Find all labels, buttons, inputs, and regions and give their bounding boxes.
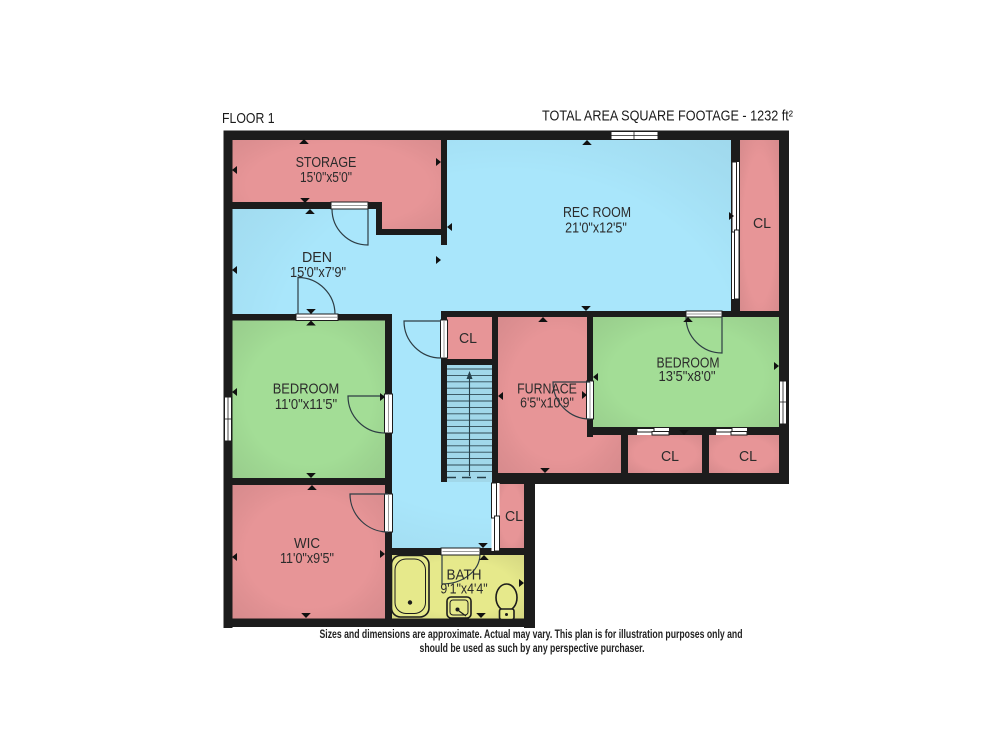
svg-text:CL: CL <box>505 508 523 525</box>
svg-text:9'1"x4'4": 9'1"x4'4" <box>440 581 487 598</box>
svg-text:REC ROOM: REC ROOM <box>563 204 631 221</box>
svg-text:CL: CL <box>459 330 477 347</box>
svg-text:6'5"x10'9": 6'5"x10'9" <box>520 395 574 412</box>
svg-text:CL: CL <box>661 448 679 465</box>
svg-text:13'5"x8'0": 13'5"x8'0" <box>659 368 716 385</box>
svg-text:TOTAL AREA SQUARE FOOTAGE - 12: TOTAL AREA SQUARE FOOTAGE - 1232 ft² <box>542 109 793 125</box>
svg-text:11'0"x9'5": 11'0"x9'5" <box>280 550 334 567</box>
svg-text:CL: CL <box>739 448 757 465</box>
svg-text:21'0"x12'5": 21'0"x12'5" <box>565 220 627 237</box>
svg-text:BEDROOM: BEDROOM <box>273 381 340 398</box>
svg-text:Sizes and dimensions are appro: Sizes and dimensions are approximate. Ac… <box>320 629 743 641</box>
svg-text:15'0"x5'0": 15'0"x5'0" <box>300 169 352 186</box>
svg-text:should be used as such by any: should be used as such by any perspectiv… <box>420 643 645 655</box>
svg-text:15'0"x7'9": 15'0"x7'9" <box>290 264 346 281</box>
svg-text:FLOOR 1: FLOOR 1 <box>222 111 275 127</box>
svg-text:CL: CL <box>753 215 771 232</box>
svg-text:11'0"x11'5": 11'0"x11'5" <box>275 396 337 413</box>
